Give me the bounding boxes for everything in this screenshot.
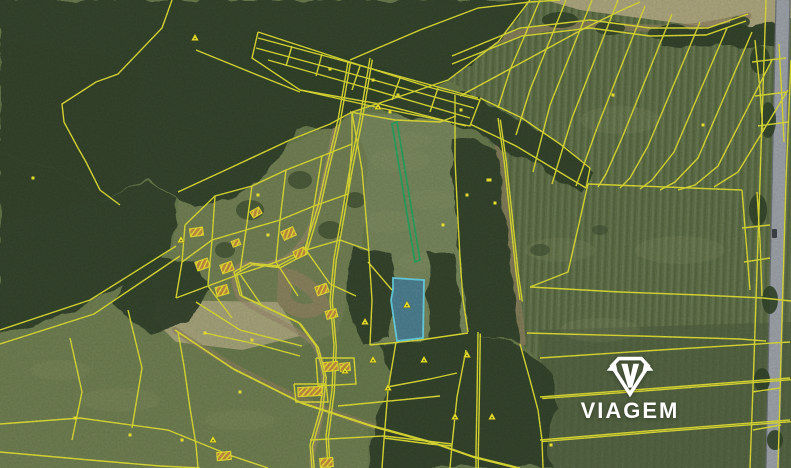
satellite-map[interactable] [0, 0, 791, 468]
highlighted-parcel[interactable] [391, 278, 424, 341]
map-container: VIAGEM [0, 0, 791, 468]
